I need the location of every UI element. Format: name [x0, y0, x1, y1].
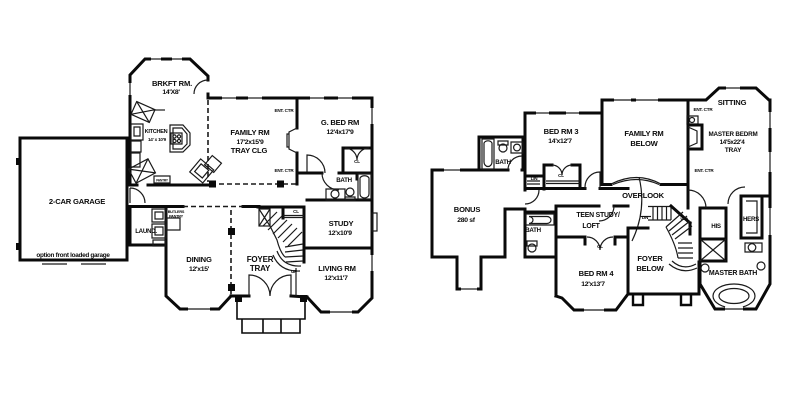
- svg-text:HERS: HERS: [743, 216, 759, 223]
- svg-text:BATH: BATH: [336, 177, 352, 184]
- svg-text:12'x10'9: 12'x10'9: [328, 230, 352, 237]
- svg-text:BELOW: BELOW: [630, 139, 658, 148]
- svg-text:BED RM 4: BED RM 4: [579, 269, 615, 278]
- svg-text:14'X8': 14'X8': [162, 89, 180, 96]
- svg-text:TEEN STUDY/: TEEN STUDY/: [576, 212, 620, 219]
- svg-text:SITTING: SITTING: [718, 98, 747, 107]
- svg-text:PANTRY: PANTRY: [156, 179, 169, 183]
- svg-text:BONUS: BONUS: [454, 205, 481, 214]
- svg-text:17'2x15'9: 17'2x15'9: [237, 139, 265, 146]
- svg-text:14'5x22'4: 14'5x22'4: [720, 139, 746, 146]
- svg-text:TRAY: TRAY: [725, 147, 742, 154]
- svg-text:MASTER BEDRM: MASTER BEDRM: [708, 131, 757, 138]
- svg-text:2-CAR GARAGE: 2-CAR GARAGE: [49, 197, 105, 206]
- svg-text:ENT. CTR: ENT. CTR: [274, 168, 294, 173]
- svg-text:BATH: BATH: [525, 227, 541, 234]
- svg-text:14' x 10'9: 14' x 10'9: [148, 137, 167, 142]
- svg-text:TRAY CLG: TRAY CLG: [231, 146, 268, 155]
- svg-text:FOYER: FOYER: [247, 255, 274, 264]
- svg-text:FAMILY RM: FAMILY RM: [230, 128, 269, 137]
- svg-text:UP: UP: [291, 269, 297, 274]
- svg-text:DINING: DINING: [186, 255, 212, 264]
- svg-text:ENT. CTR: ENT. CTR: [693, 107, 713, 112]
- svg-text:ENT. CTR: ENT. CTR: [694, 168, 714, 173]
- svg-text:MASTER BATH: MASTER BATH: [709, 270, 757, 277]
- svg-text:BUTLERS: BUTLERS: [168, 210, 185, 214]
- svg-text:OVERLOOK: OVERLOOK: [622, 191, 665, 200]
- svg-text:14'x12'7: 14'x12'7: [548, 138, 572, 145]
- svg-text:LIVING RM: LIVING RM: [318, 264, 355, 273]
- svg-text:CL: CL: [354, 159, 360, 164]
- svg-text:TRAY: TRAY: [250, 264, 271, 273]
- svg-text:FOYER: FOYER: [637, 254, 663, 263]
- svg-text:LOFT: LOFT: [582, 223, 600, 230]
- svg-text:option front loaded garage: option front loaded garage: [36, 252, 110, 259]
- svg-text:VOID: VOID: [680, 217, 688, 221]
- svg-text:PANTRY: PANTRY: [169, 215, 184, 219]
- svg-text:12'x11'7: 12'x11'7: [324, 275, 348, 282]
- svg-text:280 sf: 280 sf: [457, 217, 476, 224]
- svg-text:G. BED RM: G. BED RM: [321, 118, 359, 127]
- svg-text:LIN: LIN: [531, 176, 539, 181]
- svg-text:12'x15': 12'x15': [189, 266, 210, 273]
- svg-text:BED RM 3: BED RM 3: [544, 127, 579, 136]
- svg-text:FAMILY RM: FAMILY RM: [624, 129, 663, 138]
- svg-text:STOOP: STOOP: [173, 183, 185, 187]
- svg-text:12'4x17'9: 12'4x17'9: [327, 129, 355, 136]
- svg-text:12'x13'7: 12'x13'7: [581, 281, 605, 288]
- svg-text:BELOW: BELOW: [636, 264, 664, 273]
- svg-text:BRKFT RM.: BRKFT RM.: [152, 79, 192, 88]
- svg-text:DN: DN: [642, 215, 649, 220]
- svg-text:BATH: BATH: [495, 159, 511, 166]
- svg-text:CL: CL: [293, 209, 299, 214]
- svg-text:KITCHEN: KITCHEN: [145, 129, 168, 135]
- svg-text:HIS: HIS: [711, 223, 721, 230]
- svg-text:STUDY: STUDY: [329, 219, 354, 228]
- svg-text:ENT. CTR: ENT. CTR: [274, 108, 294, 113]
- svg-text:CL: CL: [597, 244, 603, 249]
- svg-text:LAUND.: LAUND.: [135, 228, 157, 235]
- svg-text:CL: CL: [558, 173, 564, 178]
